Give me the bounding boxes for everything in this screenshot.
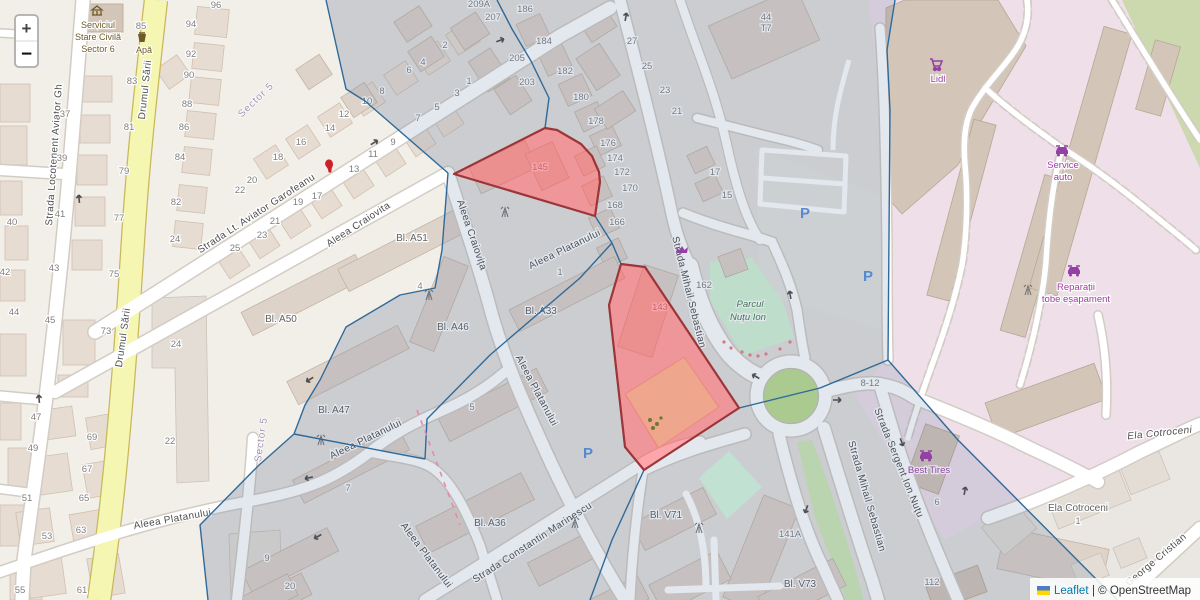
svg-text:61: 61: [77, 585, 88, 596]
svg-text:P: P: [583, 445, 593, 462]
svg-text:P: P: [800, 205, 810, 222]
svg-text:82: 82: [171, 197, 182, 208]
svg-text:25: 25: [230, 243, 241, 254]
svg-text:63: 63: [76, 525, 87, 536]
svg-text:Sector 6: Sector 6: [81, 44, 115, 54]
svg-text:23: 23: [257, 230, 268, 241]
svg-text:44: 44: [9, 307, 20, 318]
svg-text:Apă: Apă: [136, 45, 152, 55]
svg-text:12: 12: [339, 109, 350, 120]
svg-text:84: 84: [175, 152, 186, 163]
svg-text:37: 37: [60, 109, 71, 120]
svg-text:83: 83: [127, 76, 138, 87]
svg-text:−: −: [21, 44, 32, 65]
svg-text:+: +: [22, 19, 32, 38]
svg-text:47: 47: [31, 412, 42, 423]
svg-text:Service: Service: [1047, 160, 1079, 171]
svg-text:1: 1: [1075, 516, 1080, 527]
svg-text:94: 94: [186, 19, 197, 30]
svg-text:90: 90: [184, 70, 195, 81]
svg-text:65: 65: [79, 493, 90, 504]
svg-text:92: 92: [186, 49, 197, 60]
svg-text:85: 85: [136, 21, 147, 32]
svg-text:Ela Cotroceni: Ela Cotroceni: [1048, 503, 1108, 514]
svg-text:Bl. A50: Bl. A50: [265, 314, 297, 325]
svg-text:69: 69: [87, 432, 98, 443]
svg-text:81: 81: [124, 122, 135, 133]
svg-text:18: 18: [273, 152, 284, 163]
svg-text:P: P: [863, 268, 873, 285]
svg-text:13: 13: [349, 164, 360, 175]
svg-text:Stare Civilă: Stare Civilă: [75, 32, 121, 42]
svg-text:Reparații: Reparații: [1057, 282, 1095, 293]
svg-text:96: 96: [211, 0, 222, 11]
svg-text:86: 86: [179, 122, 190, 133]
svg-text:79: 79: [119, 166, 130, 177]
svg-text:73: 73: [101, 326, 112, 337]
svg-text:21: 21: [270, 216, 281, 227]
svg-text:20: 20: [247, 175, 258, 186]
svg-text:53: 53: [42, 531, 53, 542]
svg-text:45: 45: [45, 315, 56, 326]
svg-text:43: 43: [49, 263, 60, 274]
svg-text:Bl. A51: Bl. A51: [396, 233, 428, 244]
svg-text:| © OpenStreetMap: | © OpenStreetMap: [1092, 585, 1191, 597]
svg-text:9: 9: [390, 137, 395, 148]
svg-text:55: 55: [15, 585, 26, 596]
svg-text:39: 39: [57, 153, 68, 164]
svg-text:auto: auto: [1054, 172, 1073, 183]
svg-text:Leaflet: Leaflet: [1054, 585, 1089, 597]
svg-text:22: 22: [165, 436, 176, 447]
svg-text:24: 24: [170, 234, 181, 245]
svg-text:17: 17: [312, 191, 323, 202]
svg-text:14: 14: [325, 123, 336, 134]
svg-text:16: 16: [296, 137, 307, 148]
svg-text:51: 51: [22, 493, 33, 504]
svg-text:77: 77: [114, 213, 125, 224]
svg-text:49: 49: [28, 443, 39, 454]
svg-text:67: 67: [82, 464, 93, 475]
svg-text:24: 24: [171, 339, 182, 350]
svg-text:41: 41: [55, 209, 66, 220]
svg-text:11: 11: [368, 149, 378, 160]
svg-text:42: 42: [0, 267, 10, 278]
svg-text:Serviciul: Serviciul: [81, 20, 115, 30]
svg-text:75: 75: [109, 269, 120, 280]
svg-text:Lidl: Lidl: [931, 74, 946, 85]
svg-text:88: 88: [182, 99, 193, 110]
svg-text:tobe eșapament: tobe eșapament: [1042, 294, 1110, 305]
svg-text:19: 19: [293, 197, 304, 208]
svg-text:40: 40: [7, 217, 18, 228]
svg-text:22: 22: [235, 185, 246, 196]
